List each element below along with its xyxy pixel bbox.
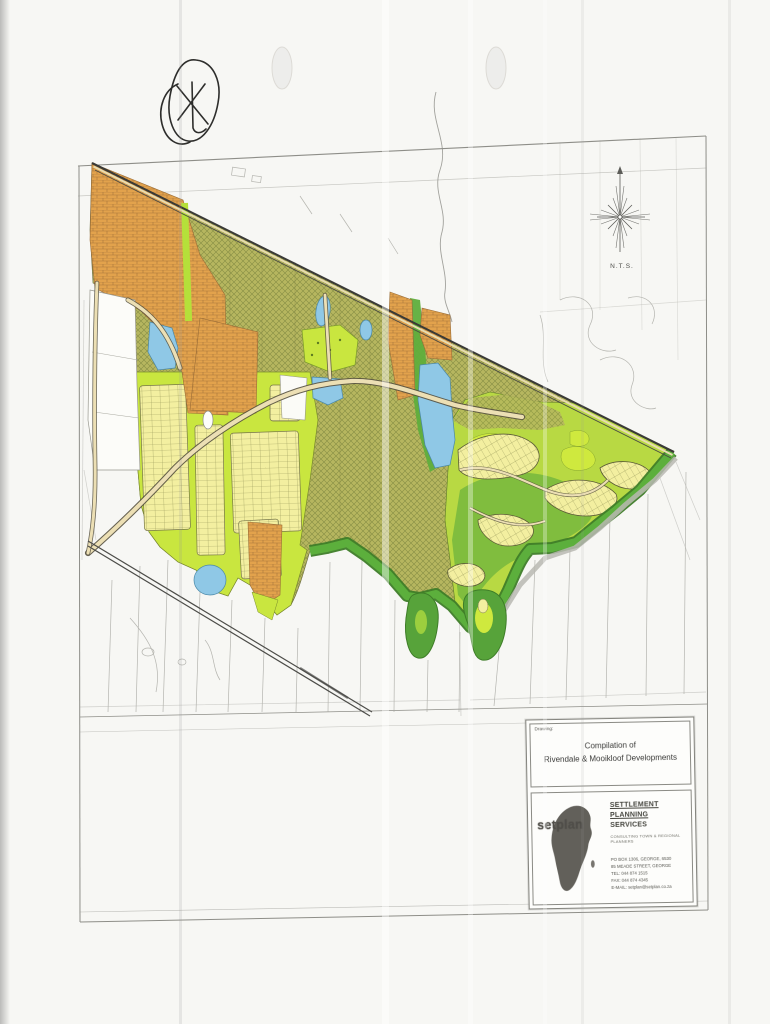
firm-tagline: CONSULTING TOWN & REGIONAL PLANNERS [610, 833, 687, 844]
drawing-label: Drawing: [534, 727, 553, 732]
zone-orange-b [190, 318, 258, 413]
scanned-plan-page: N.T.S. Drawing: Compilation of Rivendale… [0, 0, 770, 1024]
firm-name-line2: SERVICES [610, 820, 687, 832]
punch-hole-right [486, 47, 506, 89]
drawing-title-panel: Drawing: Compilation of Rivendale & Mooi… [529, 721, 691, 788]
firm-address: PO BOX 1306, GEORGE, 6530 85 MEADE STREE… [611, 856, 689, 892]
title-block: Drawing: Compilation of Rivendale & Mooi… [525, 716, 697, 909]
compass-label: N.T.S. [594, 263, 650, 270]
firm-panel: setplan SETTLEMENT PLANNING SERVICES CON… [531, 790, 694, 906]
drawing-title-line2: Rivendale & Mooikloof Developments [531, 751, 690, 767]
punch-hole-left [272, 47, 292, 89]
logo-text: setplan [537, 818, 583, 833]
development-area [88, 163, 676, 660]
address-line-5: E-MAIL: setplan@setplan.co.za [611, 884, 688, 892]
firm-name-line1: SETTLEMENT PLANNING [610, 800, 687, 822]
handwritten-doodle [161, 60, 219, 144]
